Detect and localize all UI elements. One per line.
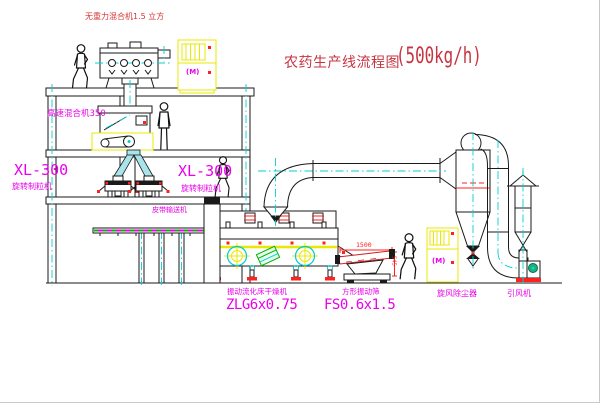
diagram-title-capacity: (500kg/h) [396,46,482,68]
sieve-height-dimension: 545 [390,256,396,266]
granulator-left-model-label: XL-300 [14,163,68,178]
cabinet1-motor-symbol: (M) [186,69,199,76]
diagram-title: 农药生产线流程图 [284,56,400,70]
cyclone-label: 旋风除尘器 [437,290,477,298]
granulator-right-name-label: 旋转制粒机 [181,185,221,193]
process-flow-diagram: 无重力混合机1.5 立方 农药生产线流程图 (500kg/h) 高速混合机350… [0,0,600,403]
control-cabinet-2 [427,228,458,282]
sieve-model-label: FS0.6x1.5 [324,298,395,312]
building-column [204,197,220,283]
person-walking-ground [400,234,416,279]
fluid-bed-dryer-drawing [205,211,354,281]
fan-label: 引风机 [507,290,531,298]
dryer-legs [211,266,335,281]
granulator-left-name-label: 旋转制粒机 [12,183,52,191]
high-speed-mixer-label: 高速混合机350 [47,110,106,119]
dryer-name-label: 振动流化床干燥机 [227,288,287,296]
sieve-length-dimension: 1500 [356,242,372,249]
dryer-model-label: ZLG6x0.75 [226,298,297,312]
cabinet2-motor-symbol: (M) [432,258,445,265]
person-walking-roof [73,45,88,88]
induced-fan-drawing [516,258,541,282]
person-standing-floor3 [158,103,170,149]
control-cabinet-1 [178,40,216,93]
belt-conveyor-label: 皮带输送机 [152,207,187,214]
granulator-right-model-label: XL-300 [178,164,232,179]
gravity-mixer-label: 无重力混合机1.5 立方 [85,13,164,21]
sieve-name-label: 方形振动筛 [342,288,380,296]
